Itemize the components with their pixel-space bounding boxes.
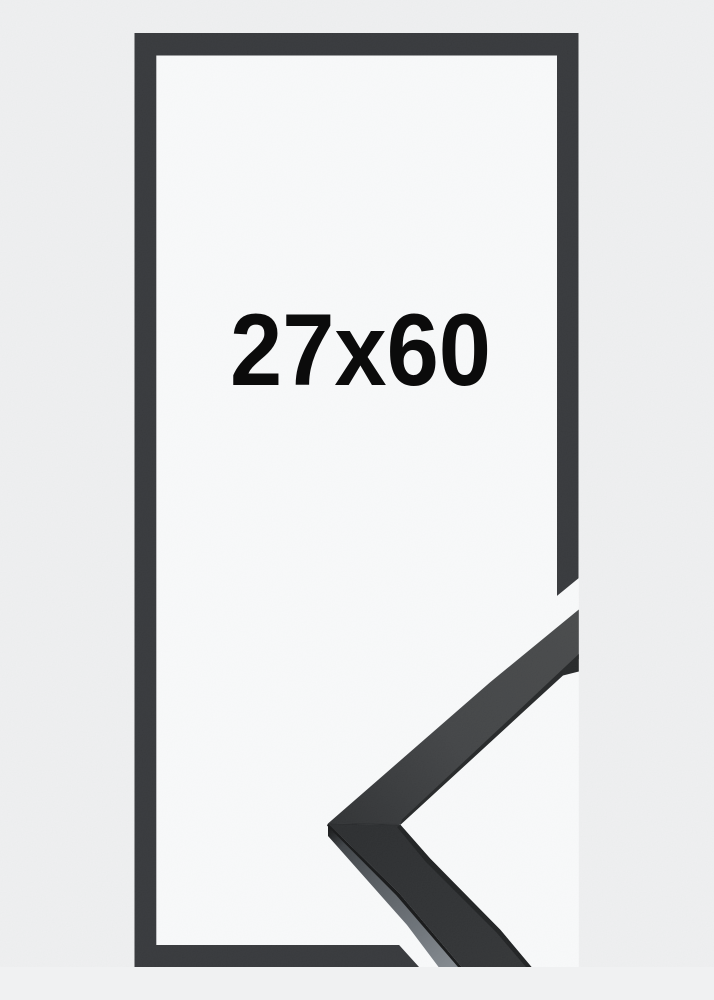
svg-text:27x60: 27x60 <box>230 293 491 407</box>
